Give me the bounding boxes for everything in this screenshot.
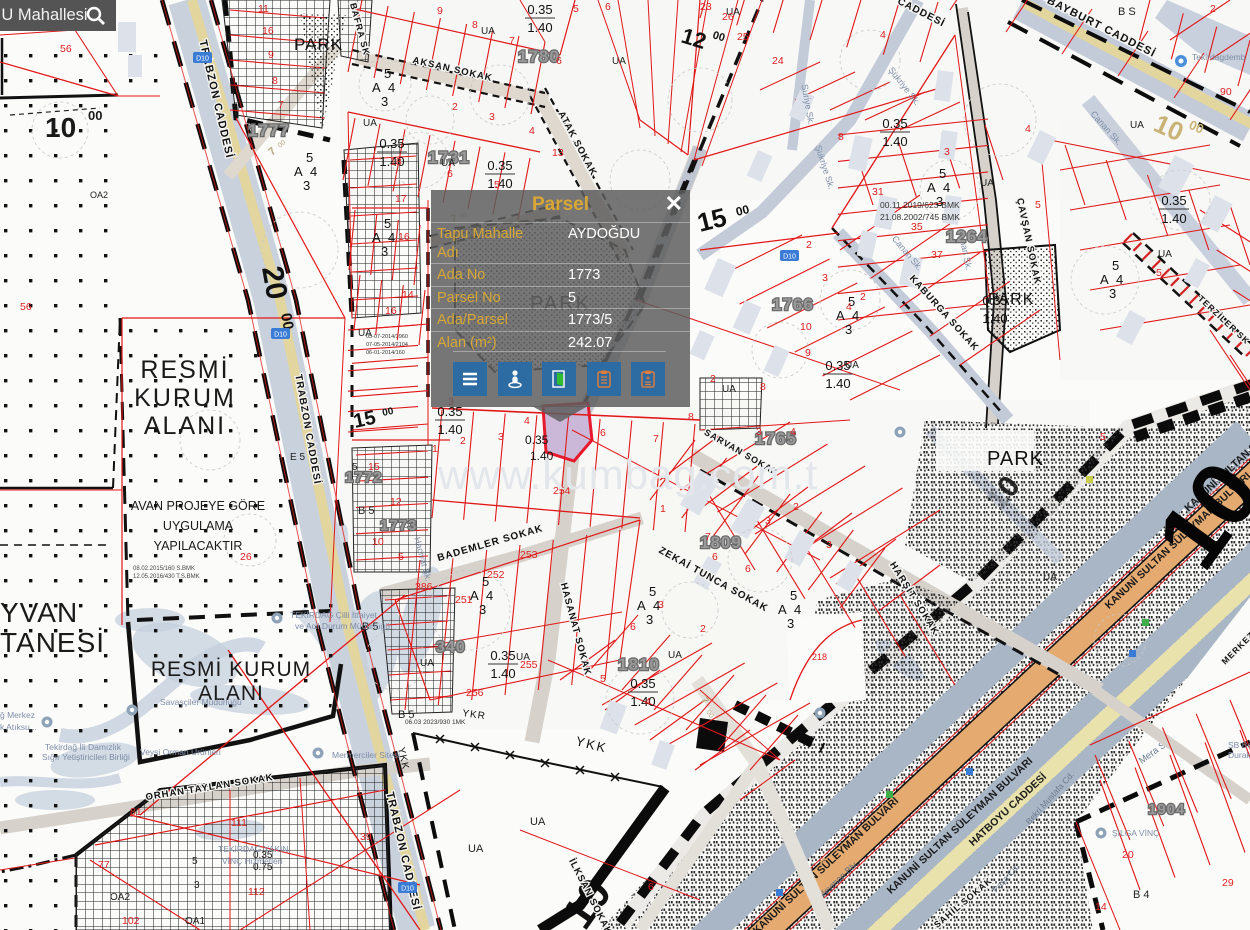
svg-text:18: 18	[390, 156, 402, 168]
svg-text:15: 15	[368, 461, 380, 473]
svg-text:4: 4	[1116, 272, 1123, 287]
svg-text:5: 5	[600, 673, 606, 685]
svg-text:1.40: 1.40	[527, 20, 552, 35]
svg-text:00: 00	[88, 108, 102, 123]
svg-text:1264: 1264	[946, 227, 988, 246]
svg-text:16: 16	[385, 305, 397, 317]
svg-text:3: 3	[826, 539, 832, 551]
svg-text:17: 17	[395, 193, 407, 205]
svg-text:39: 39	[360, 831, 372, 843]
svg-text:4: 4	[529, 125, 535, 137]
svg-text:35: 35	[911, 221, 923, 233]
svg-text:37: 37	[931, 249, 943, 261]
svg-text:A: A	[372, 80, 381, 95]
svg-text:TEKİRDAĞ Çilli İtfaiyet: TEKİRDAĞ Çilli İtfaiyet	[290, 610, 378, 620]
svg-text:UA: UA	[1043, 572, 1057, 583]
svg-text:386: 386	[415, 581, 433, 593]
svg-text:10: 10	[45, 112, 76, 143]
svg-text:26: 26	[722, 11, 734, 23]
svg-text:UA: UA	[1158, 249, 1172, 260]
svg-text:2: 2	[860, 291, 866, 303]
svg-text:3: 3	[756, 426, 762, 438]
svg-text:56: 56	[20, 301, 32, 313]
svg-text:A: A	[836, 308, 845, 323]
svg-text:0.35: 0.35	[982, 293, 1007, 308]
svg-text:29: 29	[1222, 877, 1234, 889]
svg-text:UA: UA	[612, 56, 626, 67]
svg-text:A: A	[637, 598, 646, 613]
svg-text:VİNÇ Hizmetleri: VİNÇ Hizmetleri	[222, 856, 283, 866]
svg-text:PARK: PARK	[294, 35, 343, 54]
svg-text:6: 6	[600, 427, 606, 439]
svg-text:08.02.2015/160 S.BMK: 08.02.2015/160 S.BMK	[133, 566, 195, 572]
svg-text:10: 10	[800, 321, 812, 333]
svg-text:UA: UA	[420, 658, 434, 669]
svg-text:0.35: 0.35	[630, 676, 655, 691]
svg-text:05-07-2014/3960: 05-07-2014/3960	[366, 334, 408, 340]
svg-text:UA: UA	[363, 118, 377, 129]
svg-text:UA: UA	[358, 328, 372, 339]
svg-text:31: 31	[872, 186, 884, 198]
svg-text:TANESİ: TANESİ	[0, 627, 105, 658]
svg-text:1766: 1766	[772, 295, 814, 314]
svg-text:5: 5	[1100, 431, 1106, 443]
svg-text:PARK: PARK	[987, 448, 1044, 470]
svg-text:3: 3	[936, 194, 943, 209]
svg-text:1.40: 1.40	[825, 376, 850, 391]
svg-text:5: 5	[1112, 258, 1119, 273]
svg-text:340: 340	[436, 639, 466, 656]
svg-text:3: 3	[787, 616, 794, 631]
svg-text:YAPILACAKTIR: YAPILACAKTIR	[154, 539, 243, 553]
svg-text:3: 3	[845, 322, 852, 337]
svg-text:7: 7	[653, 433, 659, 445]
svg-text:KURUM: KURUM	[134, 384, 236, 412]
svg-text:UA: UA	[668, 650, 682, 661]
svg-text:SB Beyoğlu: SB Beyoğlu	[1228, 740, 1250, 750]
svg-text:12.05.2016/430 T.S.BMK: 12.05.2016/430 T.S.BMK	[133, 574, 200, 580]
svg-text:Savaşçiler Müdürlüğü: Savaşçiler Müdürlüğü	[160, 697, 242, 707]
svg-text:3: 3	[489, 111, 495, 123]
svg-text:8: 8	[838, 131, 844, 143]
svg-text:UA: UA	[530, 816, 546, 828]
svg-text:1777: 1777	[248, 121, 290, 140]
svg-text:4: 4	[524, 415, 530, 427]
svg-text:UA: UA	[468, 843, 484, 855]
svg-text:AVAN PROJEYE GÖRE: AVAN PROJEYE GÖRE	[131, 499, 265, 513]
svg-text:1.40: 1.40	[982, 311, 1007, 326]
svg-text:2: 2	[710, 373, 716, 385]
svg-text:OA2: OA2	[90, 190, 108, 200]
svg-text:5: 5	[1156, 267, 1162, 279]
svg-text:3: 3	[381, 244, 388, 259]
svg-text:14: 14	[402, 289, 414, 301]
svg-text:7: 7	[705, 531, 711, 543]
svg-text:4: 4	[388, 230, 395, 245]
svg-text:B 5: B 5	[358, 505, 375, 517]
svg-text:5: 5	[384, 216, 391, 231]
svg-text:23: 23	[700, 1, 712, 13]
svg-text:TEKİRDAĞ YAKIN: TEKİRDAĞ YAKIN	[218, 844, 289, 854]
svg-text:4: 4	[645, 696, 651, 708]
svg-text:3: 3	[765, 515, 771, 527]
svg-text:YVAN: YVAN	[0, 597, 78, 628]
svg-text:9: 9	[805, 347, 811, 359]
svg-text:OA1: OA1	[185, 916, 205, 927]
svg-text:56: 56	[60, 43, 72, 55]
svg-text:5: 5	[192, 856, 198, 867]
svg-text:Sığır Yetiştiricileri Birliği: Sığır Yetiştiricileri Birliği	[42, 752, 130, 762]
svg-text:9: 9	[437, 5, 443, 17]
svg-text:www.kumbag.com.t: www.kumbag.com.t	[437, 451, 818, 498]
svg-text:OA2: OA2	[110, 892, 130, 903]
svg-text:A: A	[1100, 272, 1109, 287]
svg-text:0.35: 0.35	[487, 158, 512, 173]
svg-text:77: 77	[98, 859, 110, 871]
svg-text:5: 5	[790, 588, 797, 603]
svg-text:0.35: 0.35	[525, 433, 549, 447]
svg-text:RESMİ: RESMİ	[140, 355, 229, 384]
svg-text:D10: D10	[783, 254, 796, 261]
svg-text:3: 3	[303, 178, 310, 193]
svg-text:A: A	[927, 180, 936, 195]
svg-text:3: 3	[658, 599, 664, 611]
svg-text:5: 5	[939, 166, 946, 181]
svg-text:A: A	[372, 230, 381, 245]
svg-text:5: 5	[306, 150, 313, 165]
svg-text:E 5: E 5	[290, 452, 305, 463]
svg-text:6: 6	[605, 1, 611, 13]
svg-text:81: 81	[130, 806, 142, 818]
svg-text:6: 6	[745, 563, 751, 575]
svg-text:0.35: 0.35	[1161, 193, 1186, 208]
svg-text:5: 5	[398, 551, 404, 563]
svg-text:24: 24	[772, 55, 784, 67]
svg-text:16: 16	[262, 25, 274, 37]
svg-text:UA: UA	[845, 360, 859, 371]
svg-text:6: 6	[556, 55, 562, 67]
svg-text:4: 4	[790, 426, 796, 438]
svg-text:D10: D10	[401, 886, 414, 893]
svg-text:1780: 1780	[518, 47, 560, 66]
svg-text:B S: B S	[1118, 6, 1136, 18]
svg-text:2: 2	[1210, 3, 1216, 15]
svg-text:4: 4	[486, 588, 493, 603]
svg-text:00.11.2019/623-BMK: 00.11.2019/623-BMK	[880, 200, 960, 210]
svg-text:6: 6	[447, 168, 453, 180]
svg-text:5: 5	[384, 66, 391, 81]
svg-text:16: 16	[398, 231, 410, 243]
svg-text:102: 102	[122, 915, 140, 927]
svg-text:8: 8	[688, 411, 694, 423]
svg-text:4: 4	[846, 301, 852, 313]
svg-text:3: 3	[822, 272, 828, 284]
svg-text:0.35: 0.35	[379, 136, 404, 151]
svg-text:14: 14	[1095, 901, 1107, 913]
svg-text:A: A	[778, 602, 787, 617]
svg-text:ALANI: ALANI	[144, 412, 226, 440]
svg-text:4: 4	[1025, 123, 1031, 135]
svg-text:5: 5	[352, 462, 358, 473]
svg-text:251: 251	[455, 594, 473, 606]
svg-text:11: 11	[258, 3, 269, 15]
svg-text:1773: 1773	[380, 517, 417, 534]
svg-text:253: 253	[520, 549, 538, 561]
svg-text:UA: UA	[481, 26, 495, 37]
svg-text:D10: D10	[196, 56, 209, 63]
svg-text:5: 5	[1035, 199, 1041, 211]
svg-text:1.40: 1.40	[490, 666, 515, 681]
svg-text:Veysi Orman Ürünleri: Veysi Orman Ürünleri	[140, 747, 221, 757]
svg-text:1: 1	[660, 503, 666, 515]
svg-text:10: 10	[372, 536, 384, 548]
svg-text:15: 15	[351, 407, 377, 433]
svg-text:3: 3	[498, 431, 504, 443]
svg-text:07-05-2014/2104: 07-05-2014/2104	[366, 342, 408, 348]
svg-text:B 5: B 5	[398, 709, 415, 721]
svg-text:8: 8	[760, 381, 766, 393]
svg-text:UA: UA	[1130, 120, 1144, 131]
svg-text:Durakları: Durakları	[1228, 750, 1250, 760]
svg-text:5: 5	[649, 584, 656, 599]
svg-text:3: 3	[1109, 286, 1116, 301]
svg-text:UA: UA	[722, 384, 736, 395]
svg-text:7: 7	[278, 99, 284, 111]
svg-text:2: 2	[460, 435, 466, 447]
svg-text:4: 4	[943, 180, 950, 195]
svg-text:3: 3	[194, 880, 200, 891]
svg-text:0.35: 0.35	[490, 648, 515, 663]
svg-text:D10: D10	[274, 332, 287, 339]
svg-text:1.40: 1.40	[437, 422, 462, 437]
svg-text:1.40: 1.40	[487, 176, 512, 191]
svg-text:111: 111	[231, 817, 247, 829]
svg-text:UYGULAMA: UYGULAMA	[163, 519, 234, 533]
svg-text:2: 2	[700, 623, 706, 635]
svg-text:112: 112	[248, 886, 265, 898]
svg-text:1.40: 1.40	[1161, 211, 1186, 226]
svg-text:RESMİ KURUM: RESMİ KURUM	[151, 658, 311, 681]
svg-text:256: 256	[466, 687, 484, 699]
svg-text:1904: 1904	[1148, 801, 1185, 818]
svg-text:ŞILGA VİNÇ: ŞILGA VİNÇ	[1112, 828, 1159, 838]
svg-text:7: 7	[509, 35, 515, 47]
svg-text:218: 218	[812, 652, 827, 662]
svg-text:4: 4	[794, 602, 801, 617]
svg-text:12: 12	[390, 496, 402, 508]
svg-text:2: 2	[793, 501, 799, 513]
svg-text:k Atıksu...: k Atıksu...	[0, 722, 37, 732]
svg-text:25: 25	[737, 31, 749, 43]
svg-text:20: 20	[1122, 849, 1134, 861]
svg-text:4: 4	[852, 308, 859, 323]
svg-text:Mermerciler Sitesi: Mermerciler Sitesi	[332, 750, 400, 760]
svg-text:2: 2	[806, 239, 812, 251]
svg-text:26: 26	[240, 551, 252, 563]
svg-text:ve Acil Durum Müdürlüğü: ve Acil Durum Müdürlüğü	[295, 621, 390, 631]
svg-text:B 4: B 4	[1133, 889, 1150, 901]
svg-text:Tekirdağ İli Damızlık: Tekirdağ İli Damızlık	[45, 742, 122, 752]
svg-text:3: 3	[646, 612, 653, 627]
svg-text:255: 255	[520, 659, 538, 671]
svg-text:4: 4	[880, 29, 886, 41]
svg-text:5: 5	[573, 3, 579, 15]
svg-text:0.35: 0.35	[882, 116, 907, 131]
svg-text:3: 3	[381, 94, 388, 109]
svg-text:A: A	[294, 164, 303, 179]
svg-text:90: 90	[1220, 86, 1232, 98]
svg-text:ğ Merkez: ğ Merkez	[0, 710, 35, 720]
svg-text:8: 8	[272, 75, 278, 87]
svg-text:6: 6	[712, 551, 718, 563]
svg-text:4: 4	[310, 164, 317, 179]
svg-text:3: 3	[479, 602, 486, 617]
svg-text:6: 6	[648, 881, 654, 893]
svg-text:1810: 1810	[618, 655, 660, 674]
svg-text:13: 13	[552, 147, 564, 159]
svg-text:20: 20	[255, 263, 293, 302]
svg-text:9: 9	[268, 49, 274, 61]
svg-text:2: 2	[452, 101, 458, 113]
svg-text:3: 3	[944, 146, 950, 158]
svg-text:252: 252	[487, 569, 505, 581]
svg-text:1.40: 1.40	[882, 134, 907, 149]
svg-text:4: 4	[388, 80, 395, 95]
svg-text:6: 6	[630, 621, 636, 633]
svg-text:06-01-2014/160: 06-01-2014/160	[366, 350, 405, 356]
svg-text:0.35: 0.35	[527, 2, 552, 17]
svg-text:UA: UA	[980, 178, 994, 189]
svg-text:8: 8	[472, 19, 478, 31]
svg-text:1.40: 1.40	[630, 694, 655, 709]
svg-text:Tekirdagdemb: Tekirdagdemb	[1192, 52, 1246, 62]
